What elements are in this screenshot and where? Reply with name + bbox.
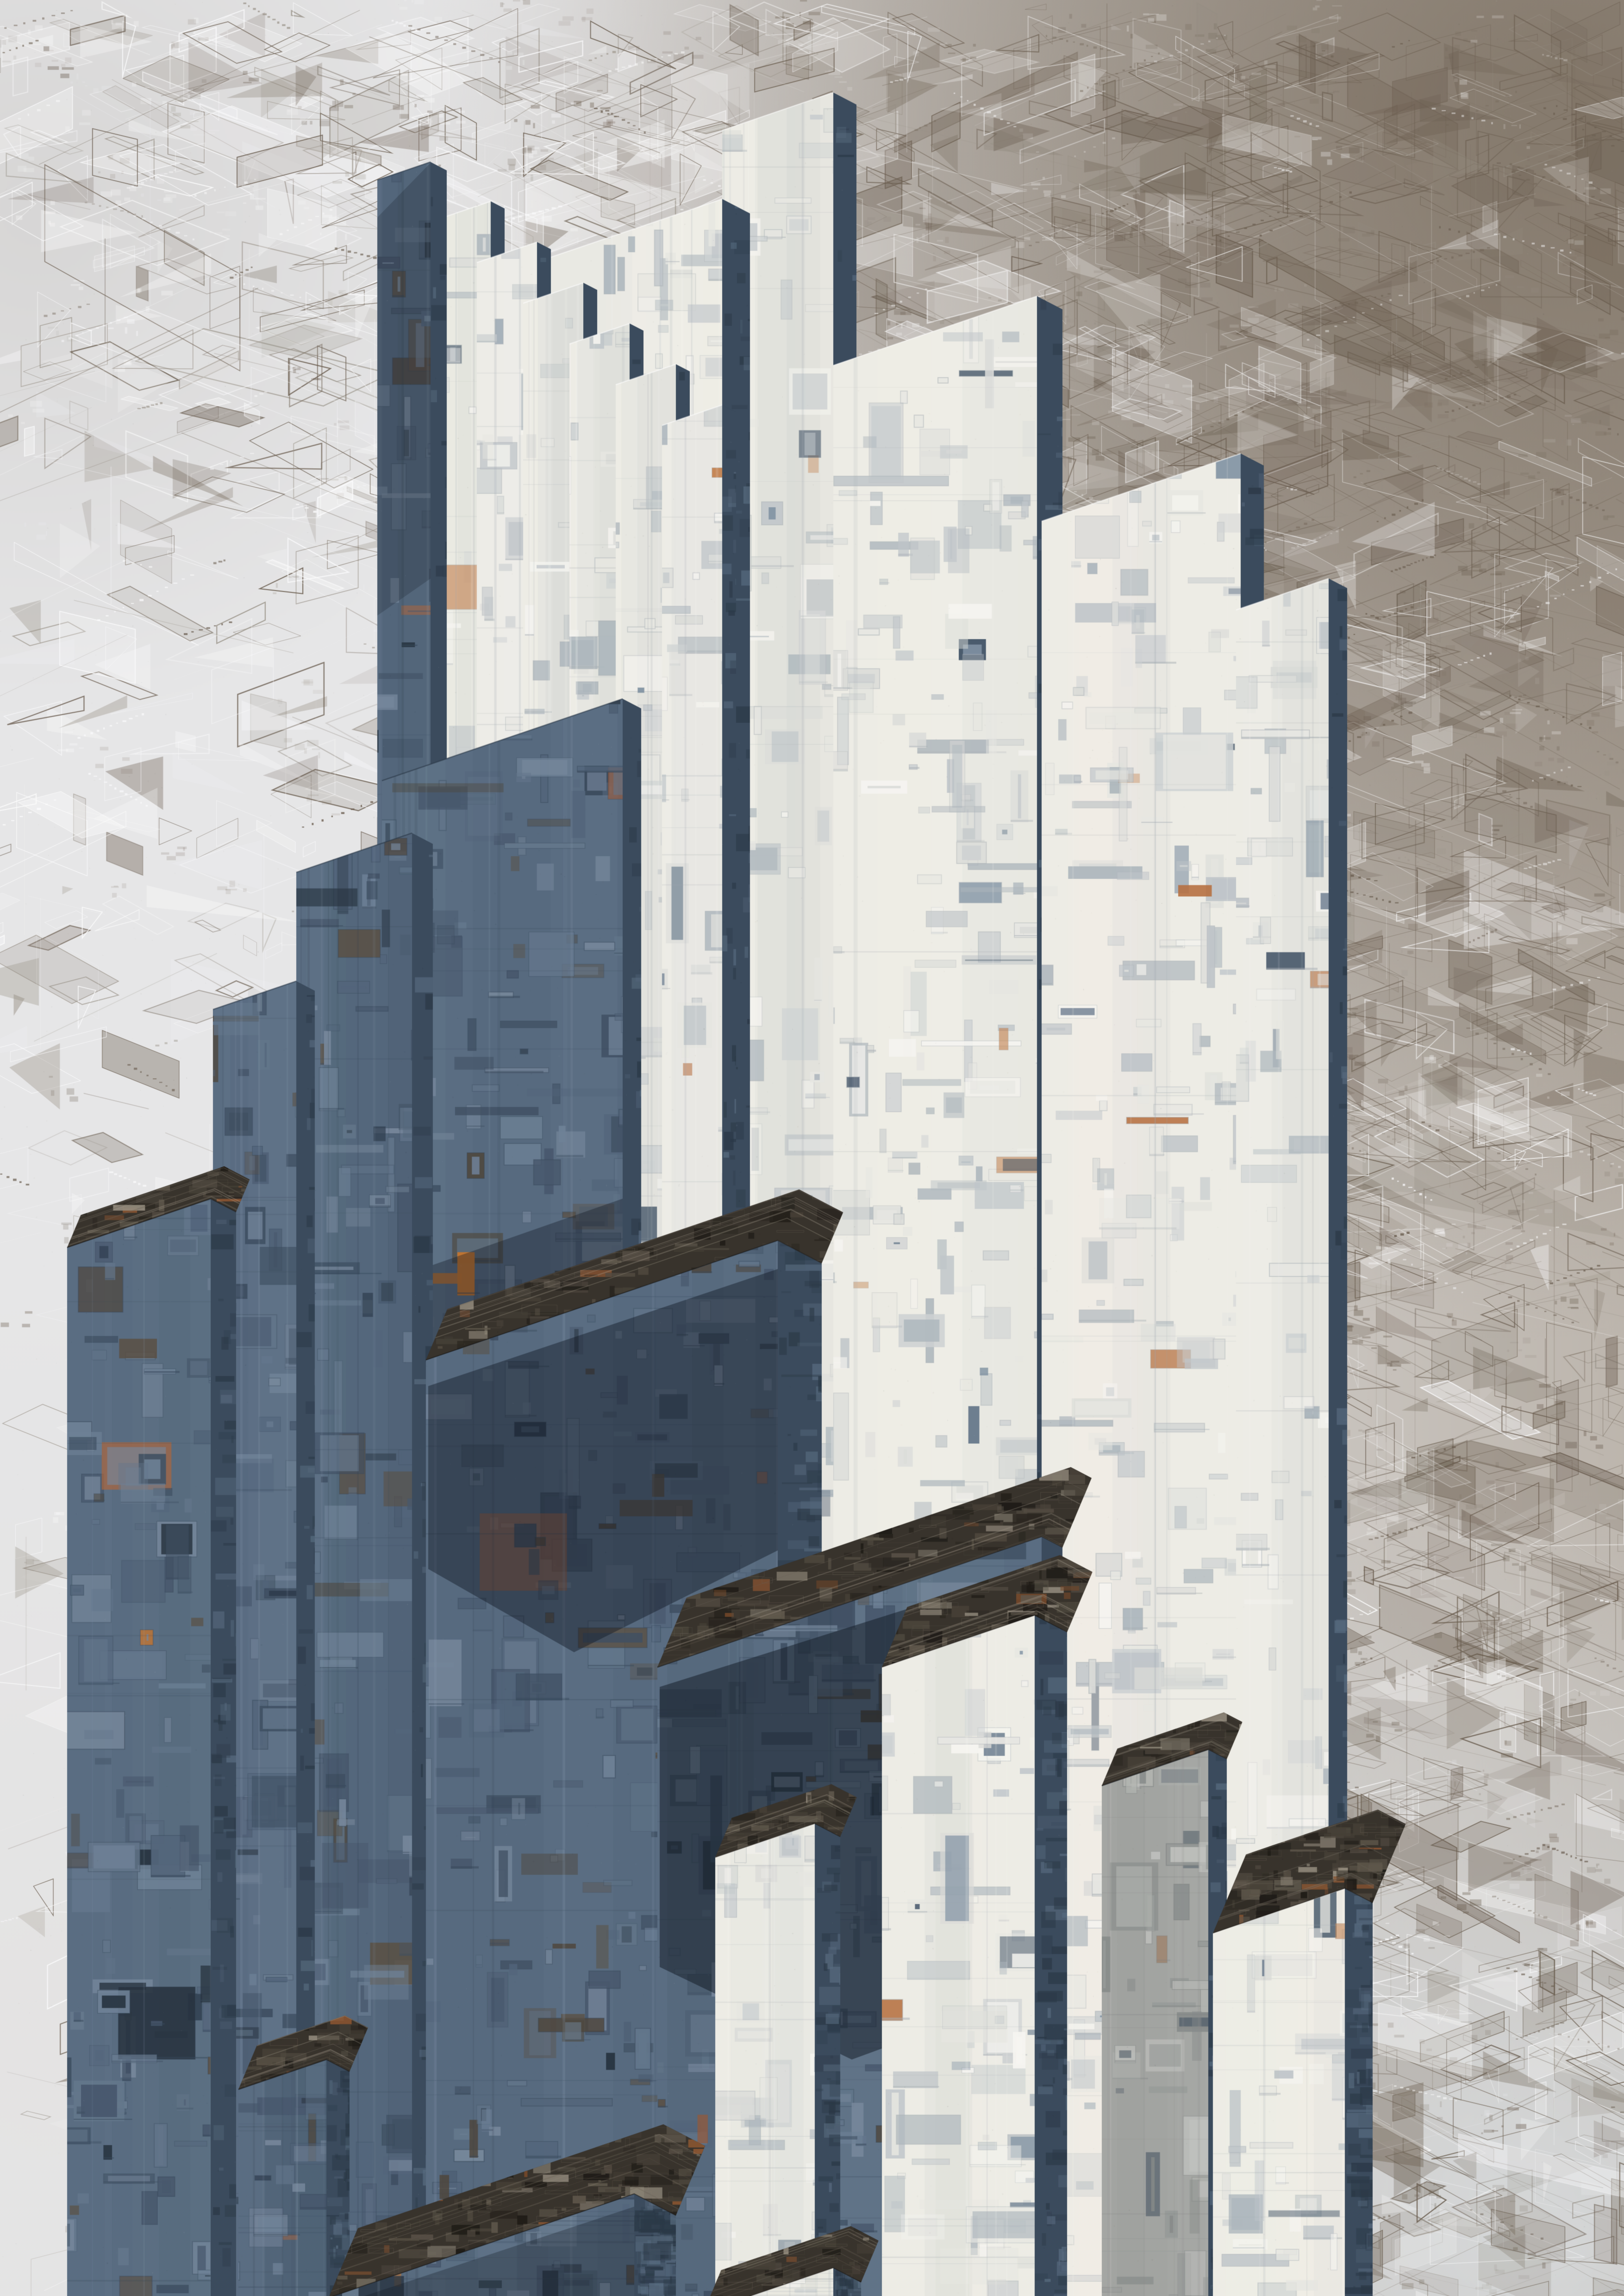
artwork-canvas (0, 0, 1624, 2296)
generative-artwork (0, 0, 1624, 2296)
